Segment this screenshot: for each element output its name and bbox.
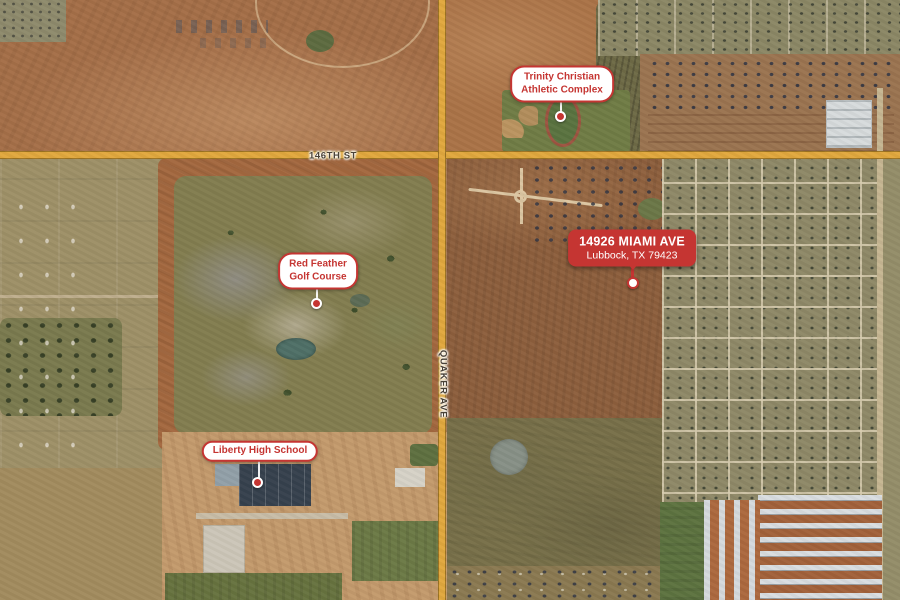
map-pin-dot[interactable] xyxy=(627,277,639,289)
satellite-map: 146TH ST QUAKER AVE Trinity Christian At… xyxy=(0,0,900,600)
terrain-golf-course xyxy=(174,176,432,434)
terrain-baseball-fields xyxy=(502,106,538,138)
terrain-school-building xyxy=(239,464,311,506)
terrain-school-building-wing xyxy=(215,464,241,486)
marker-label-line: Trinity Christian xyxy=(521,72,603,85)
terrain-warehouse-rows xyxy=(758,495,882,600)
address-city-line: Lubbock, TX 79423 xyxy=(579,250,685,262)
terrain-shed xyxy=(395,468,425,487)
map-pin-dot[interactable] xyxy=(555,111,566,122)
terrain-white-building xyxy=(826,100,872,148)
terrain-right-neighborhood-grid xyxy=(662,153,900,525)
terrain-scattered-houses xyxy=(8,190,88,450)
terrain-green-field xyxy=(165,573,342,600)
terrain-school-road xyxy=(196,513,348,519)
road-146th-st xyxy=(0,151,900,159)
street-label-146th-st: 146TH ST xyxy=(309,151,357,162)
terrain-warehouse-block xyxy=(704,500,760,600)
marker-label-line: Red Feather xyxy=(289,259,347,272)
terrain-center-scrub-field xyxy=(447,418,665,573)
terrain-right-edge-lots xyxy=(883,153,900,600)
map-pin-dot[interactable] xyxy=(311,298,322,309)
road-quaker-ave xyxy=(438,0,446,600)
terrain-golf-pond xyxy=(276,338,316,360)
marker-label-line: Athletic Complex xyxy=(521,84,603,97)
terrain-left-tan-fields xyxy=(0,468,163,600)
terrain-bottom-house-row xyxy=(447,566,665,600)
street-label-quaker-ave: QUAKER AVE xyxy=(438,350,449,418)
terrain-top-right-neighborhood xyxy=(598,0,900,56)
marker-label-trinity[interactable]: Trinity Christian Athletic Complex xyxy=(510,66,614,103)
terrain-parking-lot xyxy=(203,525,245,573)
marker-label-red-feather[interactable]: Red Feather Golf Course xyxy=(278,253,358,290)
marker-label-line: Golf Course xyxy=(289,271,347,284)
terrain-building-row xyxy=(200,38,270,48)
address-label[interactable]: 14926 MIAMI AVE Lubbock, TX 79423 xyxy=(568,230,696,267)
marker-label-line: Liberty High School xyxy=(213,445,307,458)
terrain-field-pond xyxy=(490,439,528,475)
terrain-building-row xyxy=(176,20,268,33)
address-label-pointer xyxy=(627,263,639,270)
terrain-cul-de-sac xyxy=(514,190,527,203)
terrain-golf-pond-small xyxy=(350,294,370,307)
terrain-green-field xyxy=(352,521,445,581)
marker-label-liberty[interactable]: Liberty High School xyxy=(202,441,318,462)
address-line: 14926 MIAMI AVE xyxy=(579,235,685,249)
map-pin-dot[interactable] xyxy=(252,477,263,488)
terrain-green-field xyxy=(410,444,438,466)
marker-connector-line xyxy=(258,461,260,478)
terrain-top-left-neighborhood xyxy=(0,0,66,42)
